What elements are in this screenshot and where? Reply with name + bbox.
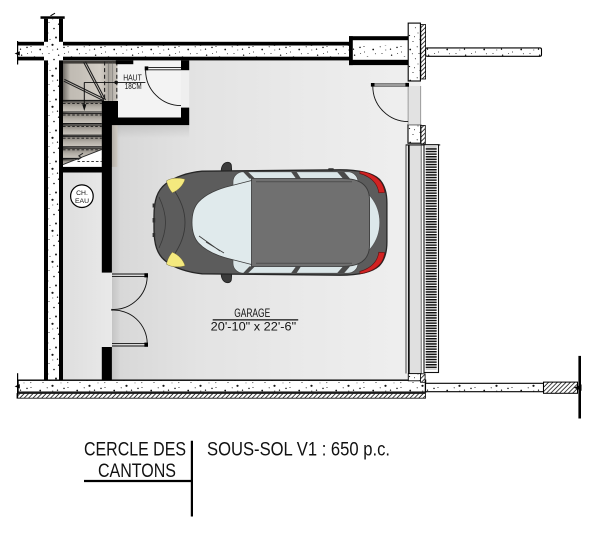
svg-text:20'-10" x 22'-6": 20'-10" x 22'-6" xyxy=(211,321,297,333)
svg-text:CERCLE DES: CERCLE DES xyxy=(84,440,186,461)
svg-text:CANTONS: CANTONS xyxy=(98,461,176,482)
svg-text:GARAGE: GARAGE xyxy=(234,306,270,320)
svg-text:18CM: 18CM xyxy=(125,81,142,91)
svg-text:CH.: CH. xyxy=(76,190,88,197)
svg-text:SOUS-SOL V1 : 650 p.c.: SOUS-SOL V1 : 650 p.c. xyxy=(207,440,390,461)
svg-text:EAU: EAU xyxy=(75,198,89,205)
